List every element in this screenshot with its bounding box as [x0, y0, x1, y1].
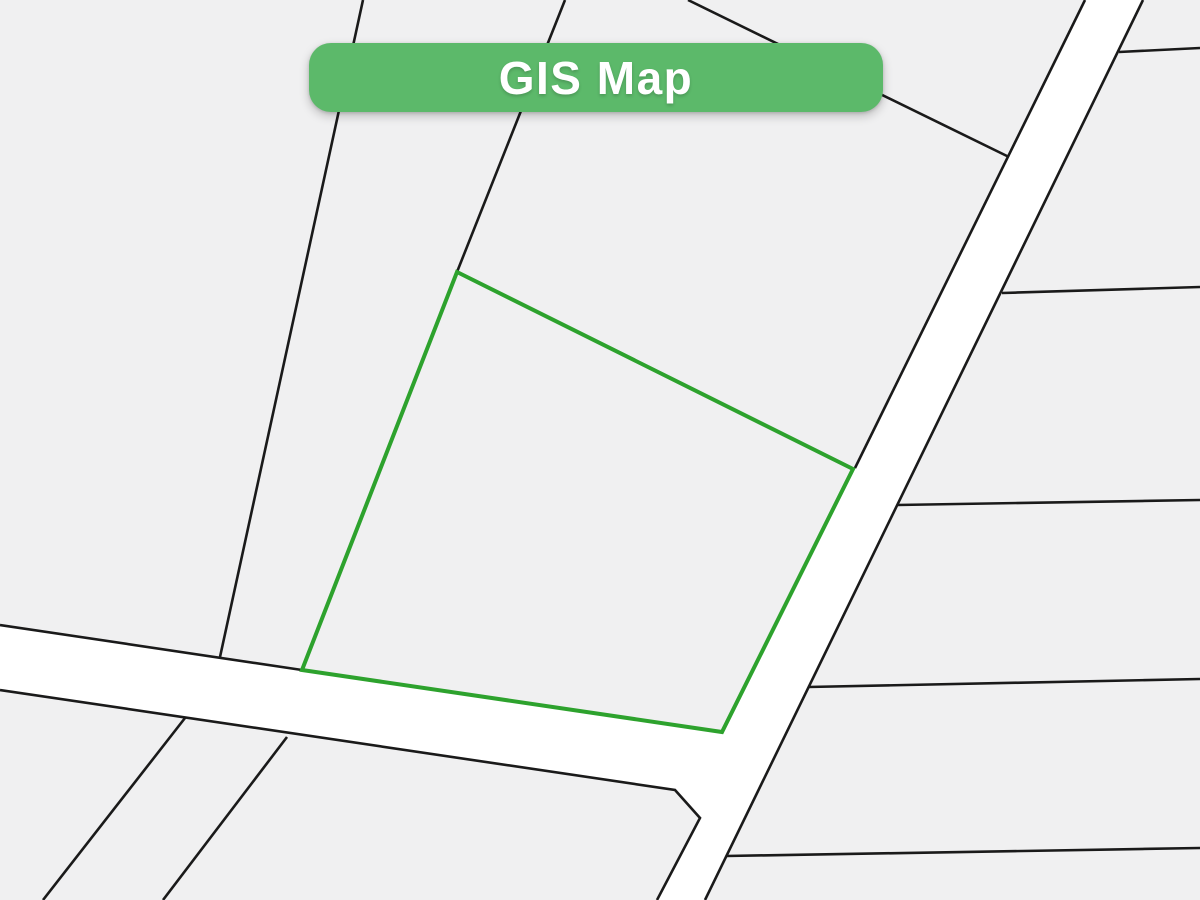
- parcel-line-east-5: [726, 848, 1200, 856]
- parcel-line-southwest-2: [163, 737, 287, 900]
- road-right-edge: [705, 0, 1143, 900]
- parcel-line-east-1: [1119, 48, 1200, 52]
- title-banner: GIS Map: [309, 43, 883, 112]
- parcel-line-southwest-1: [43, 718, 185, 900]
- parcel-line-east-2: [1002, 287, 1200, 293]
- title-text: GIS Map: [499, 51, 694, 105]
- parcel-line-east-4: [808, 679, 1200, 687]
- map-canvas[interactable]: GIS Map: [0, 0, 1200, 900]
- road-left-edge: [855, 0, 1085, 468]
- parcel-line-east-3: [897, 500, 1200, 505]
- road-surface: [0, 0, 1143, 900]
- parcel-map[interactable]: [0, 0, 1200, 900]
- parcel-line-north: [457, 0, 565, 272]
